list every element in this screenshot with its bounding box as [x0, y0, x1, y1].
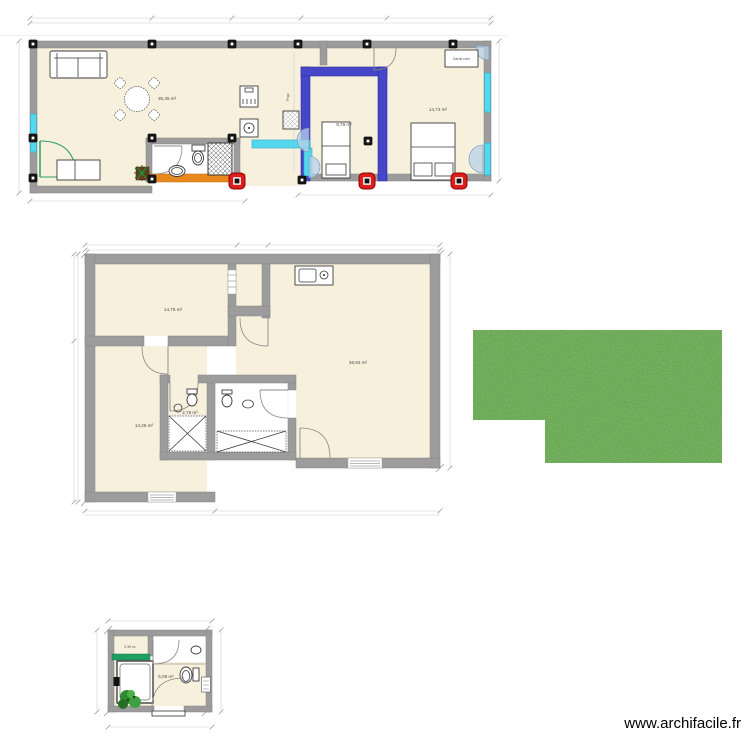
- wardrobe-label: Garde robe: [453, 57, 470, 61]
- selected-point-handle-red: [451, 173, 467, 189]
- wall-node-handle: [148, 134, 157, 143]
- fridge-label: Frigo: [286, 93, 290, 101]
- window-corridor: [228, 270, 236, 294]
- floor-plan-bottom: 0,39 m² 5,08 m²: [95, 619, 224, 730]
- single-bed[interactable]: [322, 122, 350, 178]
- wall-node-handle: [364, 137, 373, 146]
- toilet[interactable]: [222, 390, 232, 407]
- wall-node-handle: [228, 40, 237, 49]
- selected-point-handle-red: [359, 173, 375, 189]
- shower[interactable]: [208, 143, 232, 175]
- window-bottom-left: [148, 492, 176, 502]
- wall-node-handle: [298, 176, 307, 185]
- room-top-left-floor[interactable]: [95, 264, 228, 336]
- wall-node-handle: [148, 40, 157, 49]
- toilet[interactable]: [187, 389, 197, 406]
- room-main-area-label: 36,93 m²: [349, 360, 368, 365]
- wall-node-handle: [29, 40, 38, 49]
- garden-grass[interactable]: [473, 330, 722, 463]
- wall-node-handle: [228, 134, 237, 143]
- sofa[interactable]: [50, 51, 107, 78]
- shower[interactable]: [169, 416, 206, 451]
- wall-node-handle: [29, 174, 38, 183]
- wall-node-handle: [148, 175, 157, 184]
- wall-vent: [202, 677, 211, 692]
- window-right-wall-bottom: [485, 143, 491, 175]
- green-shelf[interactable]: [112, 654, 150, 660]
- room-living-area-label: 35,35 m²: [158, 96, 177, 101]
- toilet[interactable]: [180, 667, 199, 683]
- corridor-floor[interactable]: [236, 264, 262, 306]
- window-right-wall-top: [485, 73, 491, 112]
- plan-editor-canvas: Frigo Garde robe: [0, 0, 750, 750]
- room-top-left-area-label: 14,76 m²: [164, 307, 183, 312]
- hob[interactable]: [240, 119, 258, 137]
- cabinet-handle: [114, 677, 120, 686]
- selected-point-handle-red: [229, 173, 245, 189]
- closet-area-label: 0,39 m²: [124, 645, 136, 649]
- room-bottom-left-area-label: 14,26 m²: [135, 423, 154, 428]
- sink[interactable]: [191, 646, 201, 654]
- shower[interactable]: [217, 431, 286, 452]
- wall-node-handle: [363, 40, 372, 49]
- wall-node-handle: [294, 40, 303, 49]
- cabin-area-label: 5,08 m²: [158, 674, 174, 679]
- room-bedroom1-area-label: 9,78 m²: [336, 122, 352, 127]
- kitchen-sink-unit[interactable]: [295, 266, 333, 285]
- floor-plan-middle: 14,76 m² 36,93 m² 14,26 m² 2,76 m²: [72, 243, 453, 515]
- window-bottom-main: [348, 458, 382, 468]
- watermark: www.archifacile.fr: [623, 715, 741, 732]
- double-bed[interactable]: [411, 123, 455, 180]
- desk[interactable]: [57, 160, 100, 180]
- wall-node-handle: [449, 40, 458, 49]
- corridor-lower-floor[interactable]: [236, 315, 270, 376]
- window-left-wall: [31, 114, 37, 152]
- stove[interactable]: [240, 86, 258, 107]
- room-bath-small-area-label: 2,76 m²: [182, 410, 198, 415]
- floor-plan-top: Frigo Garde robe: [17, 16, 502, 204]
- sink[interactable]: [169, 166, 185, 177]
- room-bedroom2-area-label: 14,73 m²: [429, 107, 448, 112]
- wall-node-handle: [29, 134, 38, 143]
- wardrobe[interactable]: Garde robe: [445, 50, 478, 67]
